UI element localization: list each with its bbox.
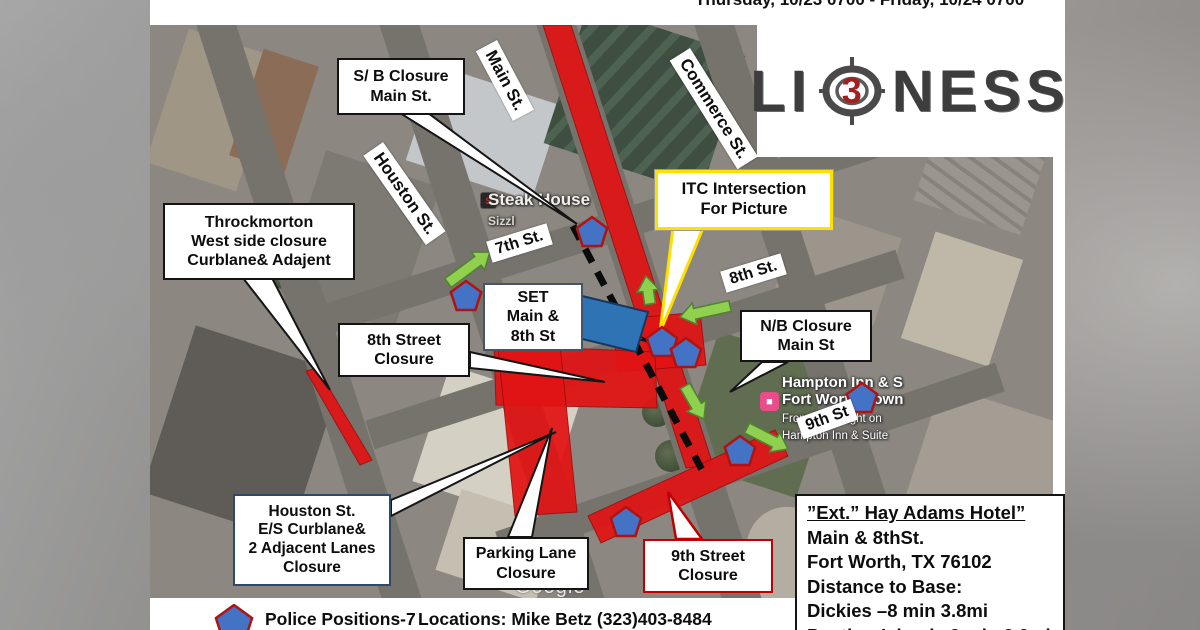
- callout-nb-closure: N/B Closure Main St: [740, 310, 872, 362]
- callout-set-location: SET Main & 8th St: [483, 283, 583, 351]
- crosshair-target-icon: 3: [816, 55, 888, 127]
- lioness-logo: LI 3 NESS: [757, 25, 1063, 157]
- location-cross-streets: Main & 8thSt.: [807, 526, 1053, 551]
- map-tree: [642, 397, 672, 427]
- logo-text-left: LI: [750, 58, 812, 125]
- police-pentagon-icon: [210, 604, 258, 630]
- distance-panther-island: Panther Island –9 min 3.9mi: [807, 624, 1053, 630]
- shoot-schedule-header: Thursday, 10/23 0700 - Friday, 10/24 070…: [695, 0, 1095, 11]
- map-tree: [670, 315, 704, 349]
- location-city: Fort Worth, TX 76102: [807, 550, 1053, 575]
- legend-locations-contact: Locations: Mike Betz (323)403-8484: [418, 609, 712, 630]
- logo-text-right: NESS: [892, 58, 1070, 125]
- hotel-map-icon: ■: [760, 392, 779, 411]
- location-title: ”Ext.” Hay Adams Hotel”: [807, 501, 1053, 526]
- distance-heading: Distance to Base:: [807, 575, 1053, 600]
- traffic-closure-map-flyer: Thursday, 10/23 0700 - Friday, 10/24 070…: [0, 0, 1200, 630]
- distance-dickies: Dickies –8 min 3.8mi: [807, 599, 1053, 624]
- location-info-box: ”Ext.” Hay Adams Hotel” Main & 8thSt. Fo…: [795, 494, 1065, 630]
- callout-houston-es-closure: Houston St. E/S Curblane& 2 Adjacent Lan…: [233, 494, 391, 586]
- callout-9th-street-closure: 9th Street Closure: [643, 539, 773, 593]
- police-pentagon: [216, 605, 252, 630]
- callout-sb-closure: S/ B Closure Main St.: [337, 58, 465, 115]
- callout-8th-street-closure: 8th Street Closure: [338, 323, 470, 377]
- callout-parking-lane-closure: Parking Lane Closure: [463, 537, 589, 590]
- steakhouse-map-label: Steak House Sizzl: [488, 190, 590, 230]
- callout-throckmorton: Throckmorton West side closure Curblane&…: [163, 203, 355, 280]
- map-building: [901, 232, 1023, 367]
- logo-season-number: 3: [816, 55, 888, 127]
- map-tree: [655, 440, 687, 472]
- callout-itc-intersection: ITC Intersection For Picture: [655, 170, 833, 230]
- legend-police-label: Police Positions-7: [265, 609, 416, 630]
